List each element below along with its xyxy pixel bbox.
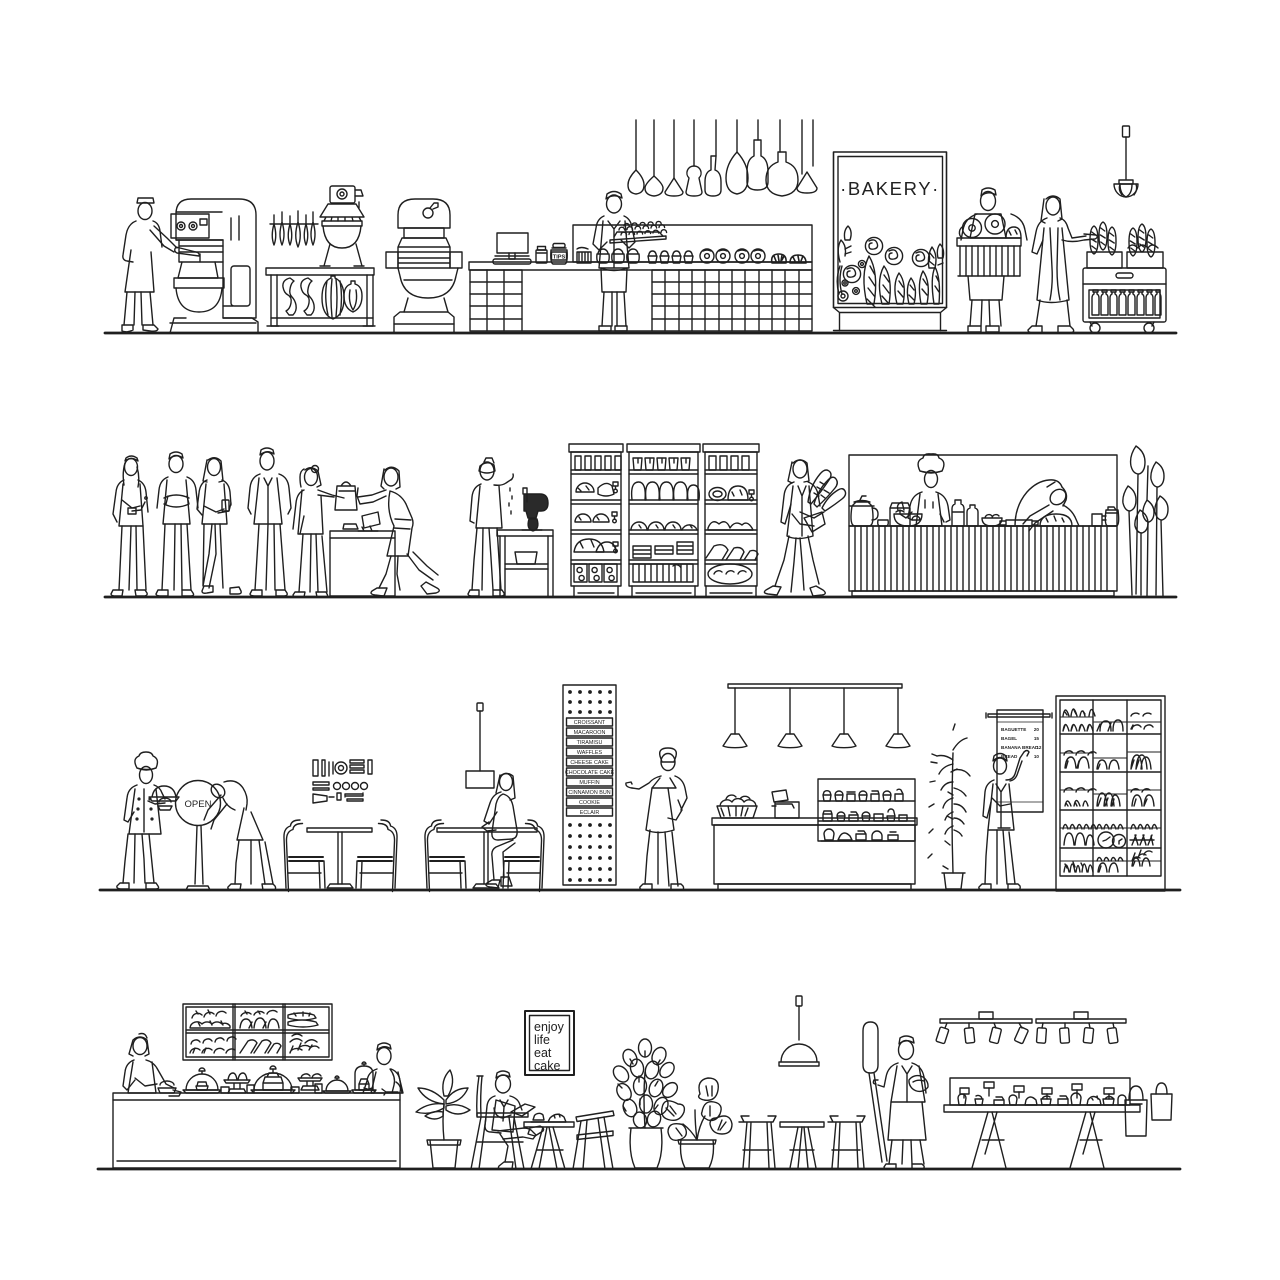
svg-text:CHOCOLATE CAKE: CHOCOLATE CAKE <box>565 770 615 776</box>
svg-text:life: life <box>534 1033 550 1047</box>
svg-text:15: 15 <box>1034 736 1040 741</box>
svg-text:MACAROON: MACAROON <box>574 730 606 736</box>
svg-text:CINNAMON BUN: CINNAMON BUN <box>568 790 610 796</box>
svg-text:TIRAMISU: TIRAMISU <box>577 740 603 746</box>
svg-text:20: 20 <box>1034 727 1040 732</box>
svg-text:TIPS: TIPS <box>553 255 566 261</box>
svg-text:BAGUETTE: BAGUETTE <box>1001 727 1026 732</box>
svg-text:CHEESE CAKE: CHEESE CAKE <box>570 760 609 766</box>
svg-text:OPEN: OPEN <box>185 799 212 810</box>
svg-text:10: 10 <box>1034 754 1040 759</box>
svg-text:enjoy: enjoy <box>534 1020 565 1034</box>
svg-text:12: 12 <box>1036 745 1042 750</box>
svg-text:ECLAIR: ECLAIR <box>580 810 600 816</box>
svg-text:WAFFLES: WAFFLES <box>577 750 603 756</box>
svg-text:BANANA BREAD: BANANA BREAD <box>1001 745 1039 750</box>
svg-text:eat: eat <box>534 1046 552 1060</box>
svg-text:BREAD: BREAD <box>1001 754 1018 759</box>
svg-text:MUFFIN: MUFFIN <box>579 780 599 786</box>
svg-text:CROISSANT: CROISSANT <box>574 720 606 726</box>
svg-text:·BAKERY·: ·BAKERY· <box>840 178 940 199</box>
svg-text:BAGEL: BAGEL <box>1001 736 1017 741</box>
svg-text:cake: cake <box>534 1059 560 1073</box>
svg-text:COOKIE: COOKIE <box>579 800 600 806</box>
